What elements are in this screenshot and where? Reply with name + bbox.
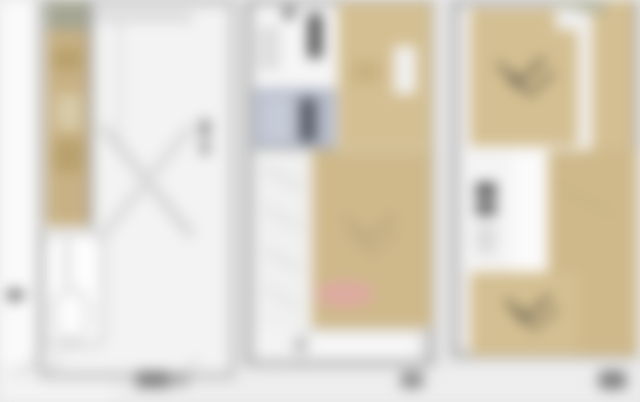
kitchen-appliance-icon bbox=[308, 14, 322, 58]
page-left-margin bbox=[0, 0, 36, 402]
sink-icon bbox=[476, 201, 496, 215]
toilet-icon bbox=[476, 183, 496, 197]
blurred-label-left bbox=[136, 371, 170, 388]
middle-door-mark bbox=[294, 342, 308, 348]
middle-balcony bbox=[300, 330, 422, 362]
bed-symbol-middle-icon bbox=[338, 200, 404, 262]
left-furniture-2 bbox=[56, 94, 82, 130]
stair-treads-icon bbox=[258, 158, 310, 318]
left-interior-wall-horizontal bbox=[95, 14, 193, 21]
blurred-label-middle bbox=[401, 372, 423, 388]
left-wc-divider bbox=[66, 237, 68, 285]
door-swing-line-icon bbox=[552, 178, 618, 220]
wardrobe-icon bbox=[394, 46, 416, 94]
bed-symbol-bottom-icon bbox=[500, 286, 568, 332]
bathroom-fixture-panel bbox=[262, 96, 292, 142]
right-white-column bbox=[512, 152, 548, 272]
right-white-notch bbox=[556, 8, 578, 30]
left-right-wall bbox=[230, 0, 234, 378]
floor-plan-sheet bbox=[0, 0, 640, 402]
left-furniture-3 bbox=[54, 140, 82, 172]
dimension-tick-marks-left bbox=[16, 352, 64, 380]
blurred-label-left-tail bbox=[172, 374, 188, 385]
pink-rug bbox=[316, 281, 374, 307]
stair-cross-icon bbox=[98, 120, 196, 242]
middle-bedroom-shadow bbox=[352, 62, 380, 82]
left-door-mark-1 bbox=[201, 120, 209, 136]
blurred-image-layer bbox=[0, 0, 640, 402]
kitchen-cabinet-icon bbox=[258, 26, 280, 70]
right-wall-strip bbox=[578, 8, 592, 148]
entry-dot-marker-small bbox=[21, 291, 28, 298]
shower-icon bbox=[300, 98, 316, 142]
left-door-mark-2 bbox=[201, 142, 209, 154]
left-entry-green-area bbox=[46, 0, 88, 30]
left-furniture-1 bbox=[52, 48, 82, 70]
bathtub-icon bbox=[52, 288, 90, 342]
entry-dot-marker bbox=[8, 289, 20, 301]
bed-symbol-top-icon bbox=[492, 44, 568, 102]
blurred-label-right bbox=[599, 371, 626, 389]
bath-cabinet-icon bbox=[476, 224, 496, 254]
left-interior-wall-vertical bbox=[88, 0, 93, 228]
kitchen-fixture-icon bbox=[284, 8, 294, 18]
